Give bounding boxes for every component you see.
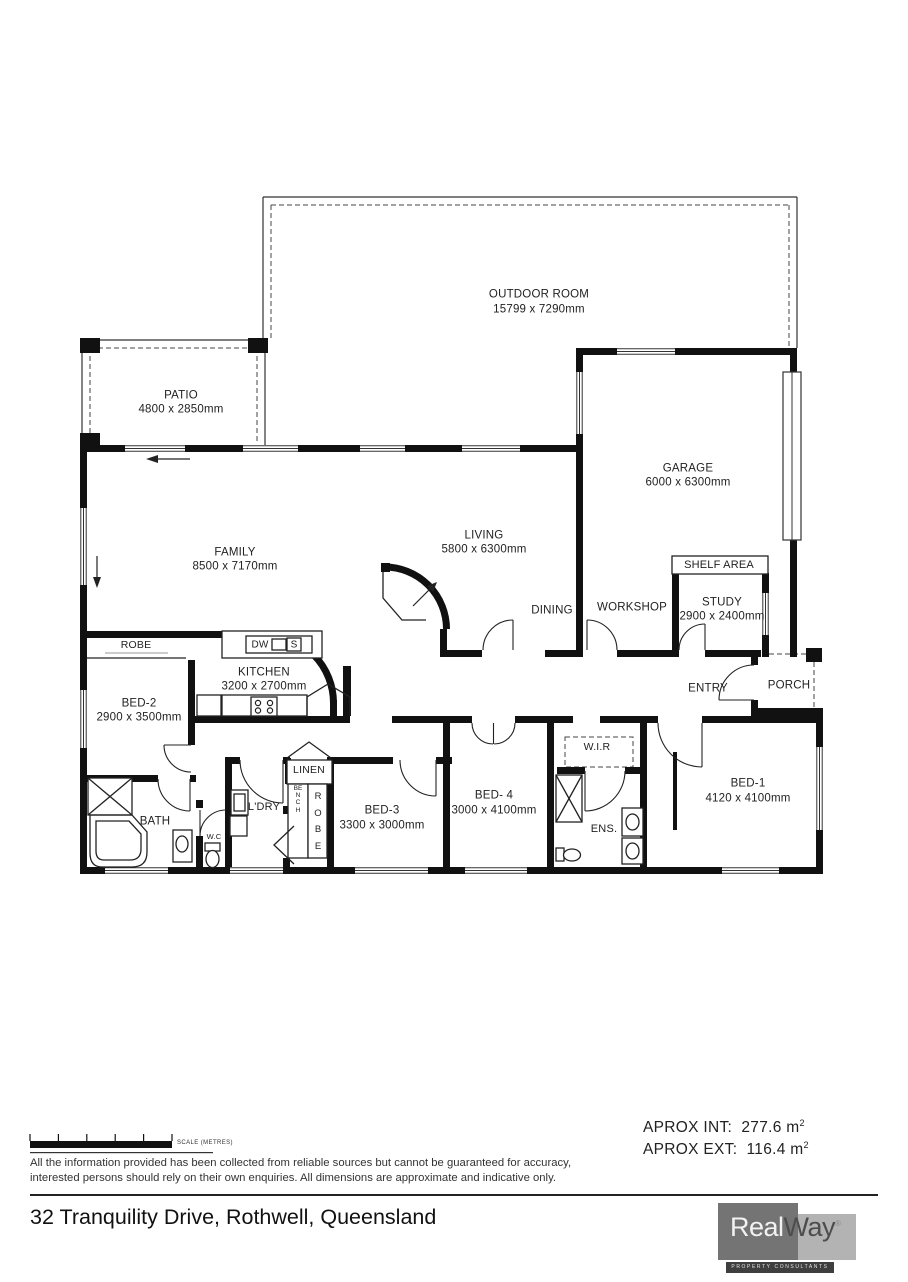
- study-label: STUDY: [702, 597, 742, 610]
- bed2-dims: 2900 x 3500mm: [96, 712, 181, 725]
- arrow-left-icon: [146, 455, 190, 463]
- approx-ext-sup: 2: [804, 1140, 809, 1150]
- garage-door: [783, 372, 801, 540]
- approx-int-label: APROX INT:: [643, 1119, 732, 1136]
- logo-word-real: Real: [730, 1212, 784, 1242]
- living-dims: 5800 x 6300mm: [441, 544, 526, 557]
- bed1-dims: 4120 x 4100mm: [705, 793, 790, 806]
- disclaimer-line-1: All the information provided has been co…: [30, 1157, 571, 1169]
- logo-registered-mark: ®: [835, 1219, 840, 1228]
- bed3-dims: 3300 x 3000mm: [339, 820, 424, 833]
- approx-int-sup: 2: [799, 1118, 804, 1128]
- shelf-area-label: SHELF AREA: [684, 559, 754, 571]
- wir-label: W.I.R: [584, 742, 611, 754]
- arrow-down-icon: [93, 556, 101, 588]
- porch-label: PORCH: [768, 680, 811, 693]
- garage-label: GARAGE: [663, 463, 713, 476]
- kitchen-dims: 3200 x 2700mm: [221, 681, 306, 694]
- ens-label: ENS.: [591, 823, 617, 835]
- bed4-dims: 3000 x 4100mm: [451, 805, 536, 818]
- robe-hall-label: ROBE: [314, 789, 323, 855]
- outdoor-room-dims: 15799 x 7290mm: [493, 304, 585, 317]
- robe-bed2-label: ROBE: [121, 640, 152, 652]
- living-label: LIVING: [465, 530, 504, 543]
- workshop-label: WORKSHOP: [597, 602, 667, 615]
- sink-label: S: [291, 640, 298, 651]
- approx-internal-area: APROX INT: 277.6 m2: [643, 1118, 805, 1137]
- approx-external-area: APROX EXT: 116.4 m2: [643, 1140, 809, 1159]
- approx-ext-value: 116.4 m: [747, 1141, 804, 1158]
- logo-tagline: PROPERTY CONSULTANTS: [726, 1262, 834, 1273]
- separator-line: [30, 1194, 878, 1196]
- logo-wordmark: RealWay®: [730, 1212, 840, 1243]
- disclaimer-line-2: interested persons should rely on their …: [30, 1172, 556, 1184]
- dishwasher-label: DW: [251, 640, 268, 651]
- outdoor-room-label: OUTDOOR ROOM: [489, 289, 589, 302]
- bed1-label: BED-1: [731, 778, 766, 791]
- bed2-label: BED-2: [122, 698, 157, 711]
- dining-label: DINING: [531, 605, 572, 618]
- approx-ext-label: APROX EXT:: [643, 1141, 737, 1158]
- floorplan-page: OUTDOOR ROOM15799 x 7290mmPATIO4800 x 28…: [0, 0, 908, 1282]
- realway-logo: RealWay® PROPERTY CONSULTANTS: [718, 1198, 863, 1276]
- entry-label: ENTRY: [688, 683, 728, 696]
- scale-label: SCALE (METRES): [177, 1140, 233, 1146]
- family-dims: 8500 x 7170mm: [192, 561, 277, 574]
- logo-word-way: Way: [784, 1212, 836, 1242]
- ldry-label: L'DRY: [248, 801, 280, 813]
- family-label: FAMILY: [214, 547, 255, 560]
- patio-label: PATIO: [164, 390, 198, 403]
- garage-dims: 6000 x 6300mm: [645, 477, 730, 490]
- kitchen-label: KITCHEN: [238, 667, 290, 680]
- bed3-label: BED-3: [365, 805, 400, 818]
- bath-label: BATH: [140, 816, 171, 829]
- study-dims: 2900 x 2400mm: [679, 611, 764, 624]
- bed4-label: BED- 4: [475, 790, 513, 803]
- wc-label: W.C: [207, 833, 222, 841]
- property-address: 32 Tranquility Drive, Rothwell, Queensla…: [30, 1205, 436, 1230]
- linen-label: LINEN: [293, 765, 325, 777]
- bench-label: BENCH: [294, 785, 303, 814]
- patio-dims: 4800 x 2850mm: [138, 404, 223, 417]
- approx-int-value: 277.6 m: [741, 1119, 799, 1136]
